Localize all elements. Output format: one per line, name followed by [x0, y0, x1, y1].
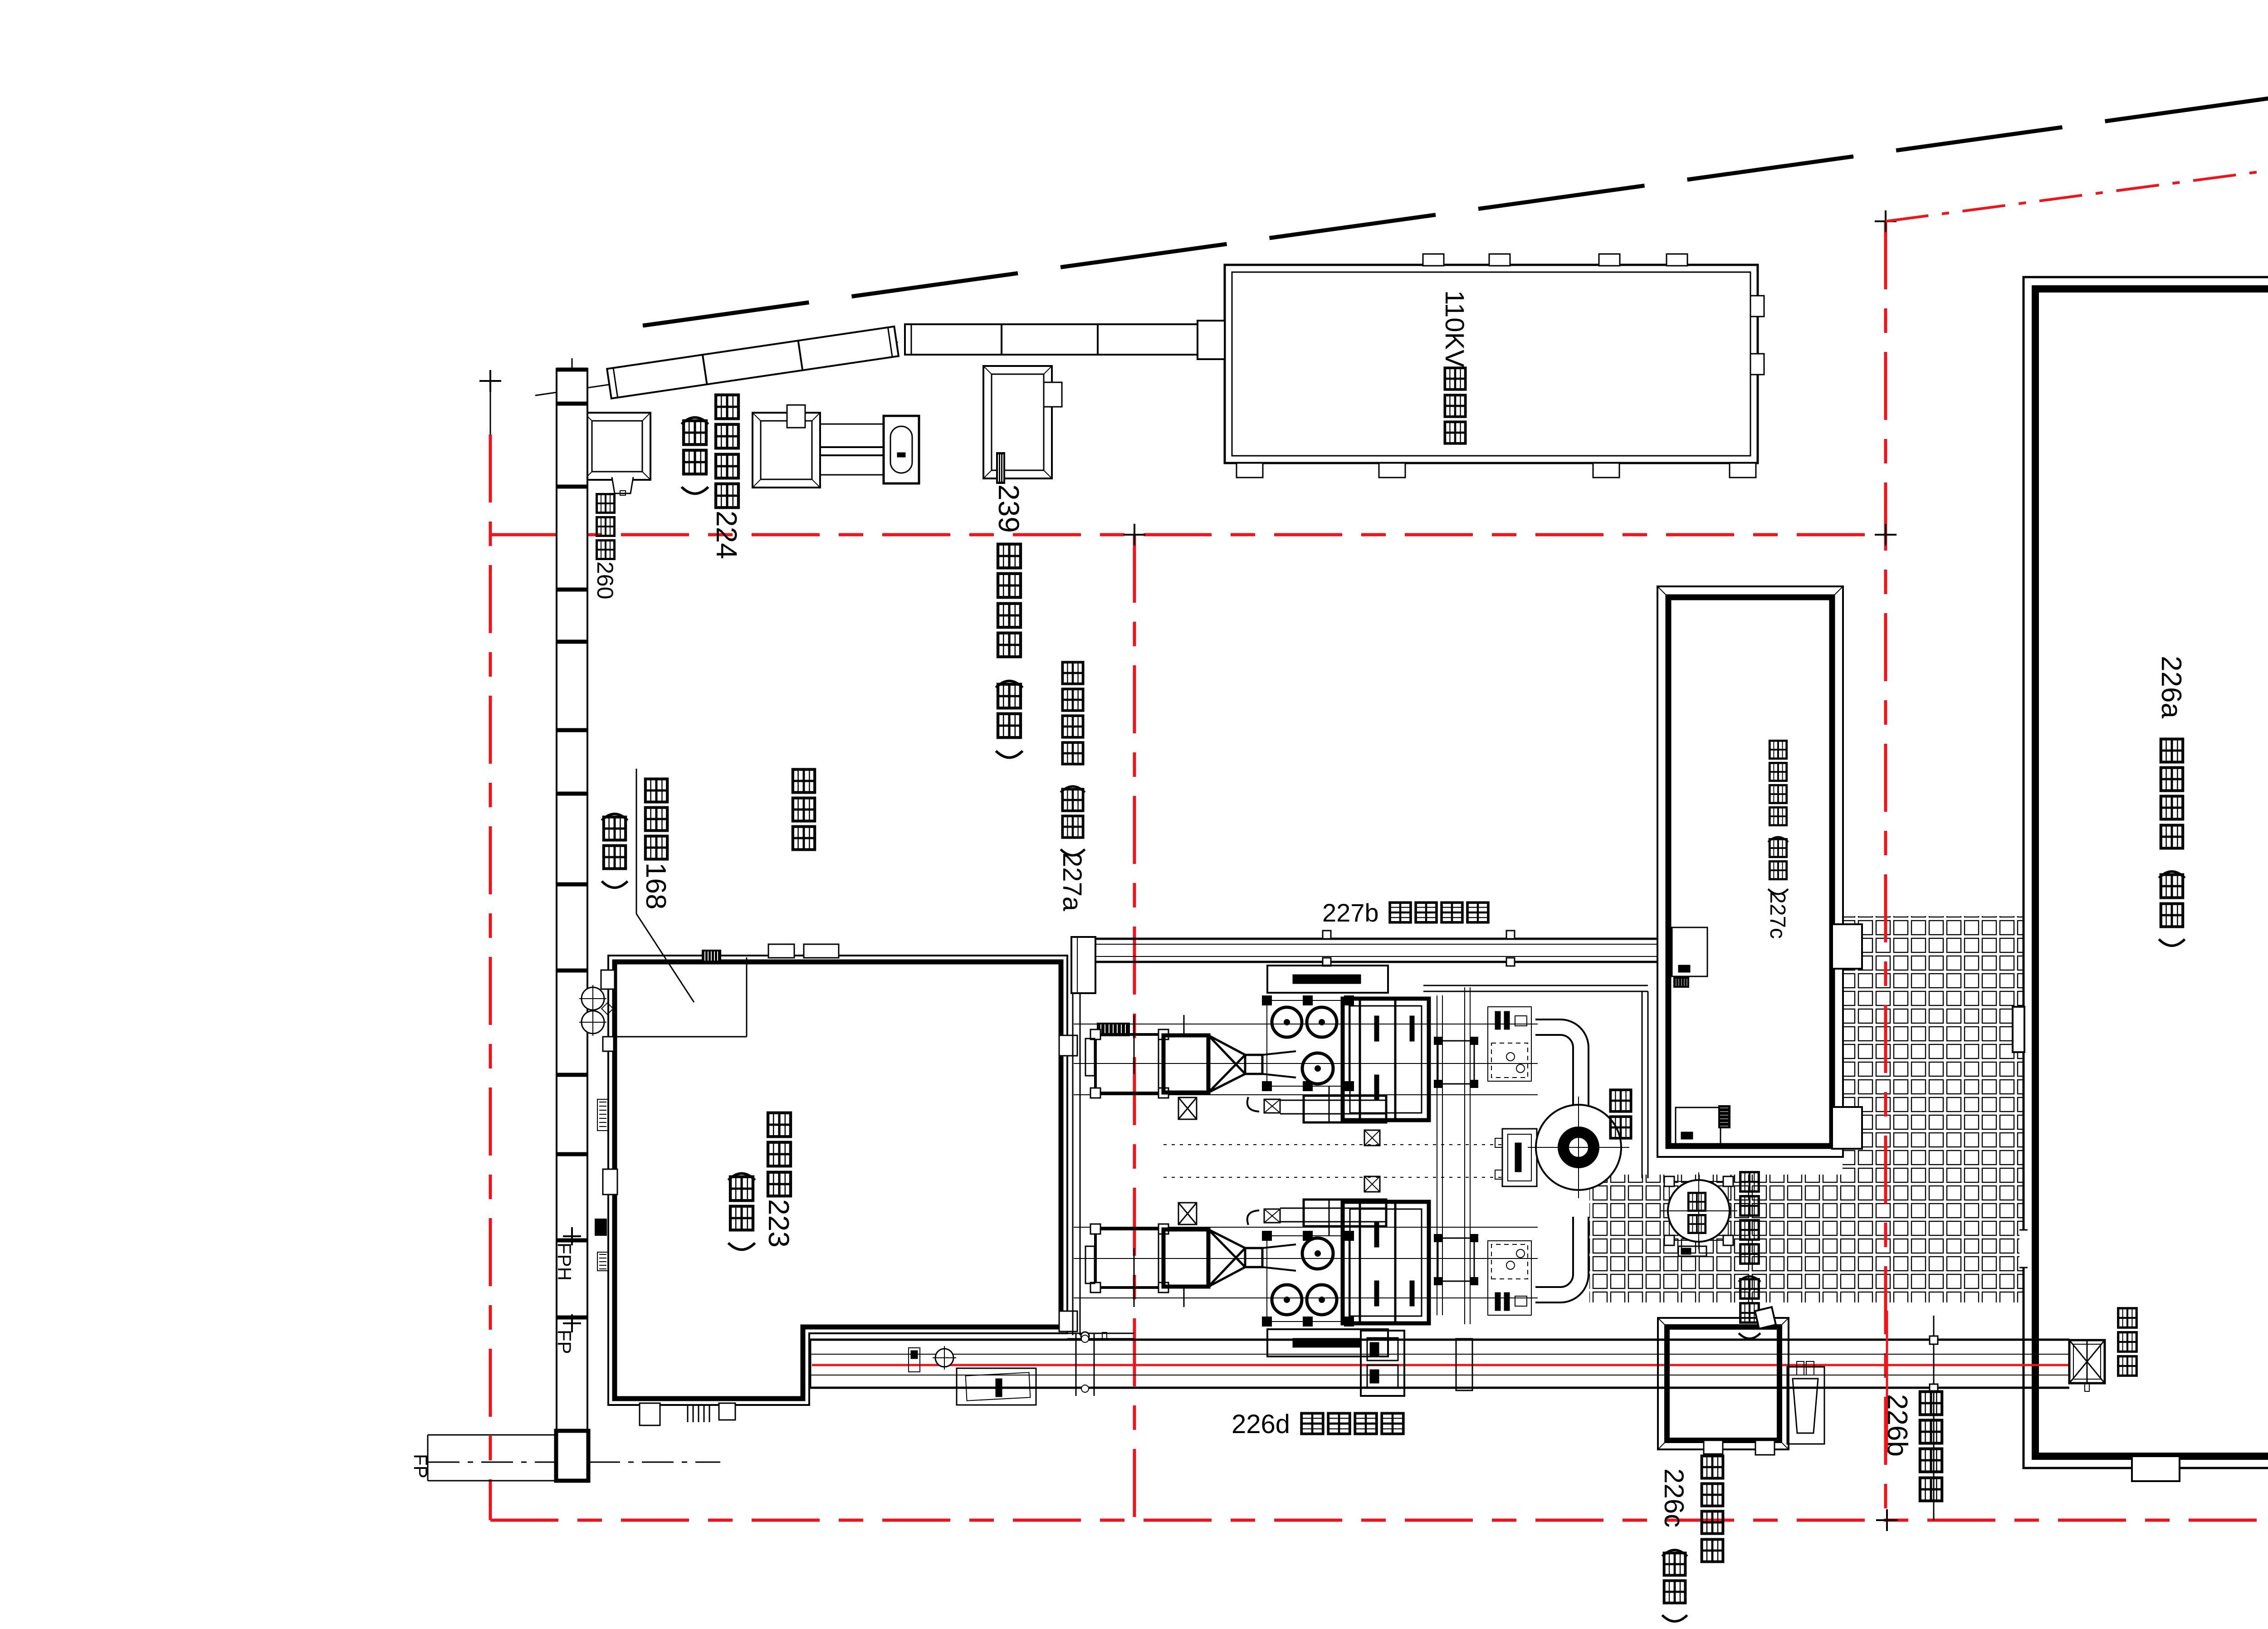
svg-text:239: 239: [992, 484, 1025, 533]
svg-text:227c: 227c: [1765, 892, 1789, 939]
svg-text:226d: 226d: [1232, 1410, 1290, 1439]
svg-text:226c: 226c: [1659, 1468, 1689, 1527]
svg-text:226a: 226a: [2156, 656, 2187, 718]
svg-text:FP: FP: [410, 1454, 431, 1478]
svg-text:260: 260: [592, 561, 618, 599]
svg-text:227a: 227a: [1057, 853, 1087, 912]
svg-text:226b: 226b: [1882, 1394, 1913, 1457]
svg-text:227b: 227b: [1322, 898, 1379, 927]
svg-text:223: 223: [763, 1199, 795, 1248]
svg-text:224: 224: [710, 511, 743, 559]
svg-text:FPH: FPH: [554, 1243, 575, 1281]
svg-text:168: 168: [640, 863, 671, 909]
svg-text:FP: FP: [554, 1330, 575, 1354]
svg-text:110KV: 110KV: [1440, 290, 1469, 367]
